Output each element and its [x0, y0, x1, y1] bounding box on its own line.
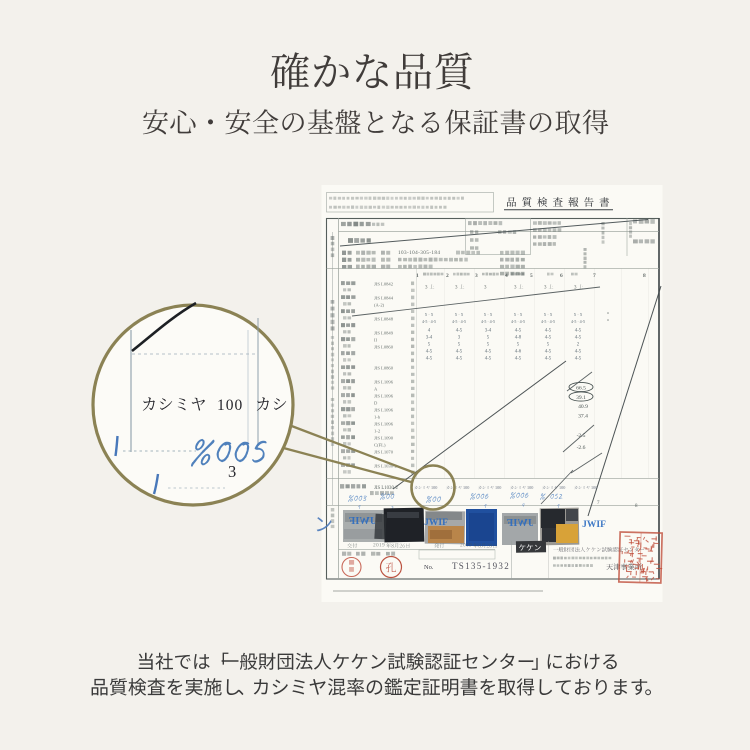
svg-text:4-5: 4-5 [545, 357, 552, 362]
svg-text:100: 100 [495, 485, 501, 490]
svg-text:4-5: 4-5 [575, 350, 582, 355]
svg-text:4-5 · 4-5: 4-5 · 4-5 [541, 319, 555, 324]
svg-text:1-b: 1-b [374, 414, 381, 419]
svg-text:JIS L1096: JIS L1096 [374, 421, 394, 426]
svg-text:3: 3 [475, 273, 478, 279]
svg-text:5 · 5: 5 · 5 [425, 312, 434, 317]
svg-text:4-5 · 4-5: 4-5 · 4-5 [571, 319, 585, 324]
svg-text:JIS L1096: JIS L1096 [374, 393, 394, 398]
svg-text:JIS L0844: JIS L0844 [374, 295, 394, 300]
svg-text:5 · 5: 5 · 5 [455, 312, 464, 317]
svg-text:II: II [374, 337, 378, 342]
svg-text:8: 8 [643, 273, 646, 279]
svg-text:5: 5 [530, 273, 533, 279]
svg-text:5 · 5: 5 · 5 [544, 312, 553, 317]
svg-text:2: 2 [446, 273, 449, 279]
svg-text:100: 100 [431, 485, 437, 490]
svg-text:JWIF: JWIF [582, 520, 606, 530]
svg-text:JWIF: JWIF [424, 518, 448, 528]
svg-text:JIS L1096: JIS L1096 [374, 379, 394, 384]
svg-text:4-8: 4-8 [515, 336, 522, 341]
svg-text:6: 6 [560, 273, 563, 279]
svg-text:4-5 · 4-5: 4-5 · 4-5 [422, 319, 436, 324]
svg-text:100: 100 [591, 485, 597, 490]
svg-text:JIS L0849: JIS L0849 [374, 330, 394, 335]
svg-text:4-5: 4-5 [456, 350, 463, 355]
svg-text:4-5 · 4-5: 4-5 · 4-5 [481, 319, 495, 324]
svg-text:4-5: 4-5 [545, 350, 552, 355]
svg-text:JWIF: JWIF [507, 518, 533, 529]
svg-text:4-5: 4-5 [426, 350, 433, 355]
svg-text:JIS L0860: JIS L0860 [374, 344, 394, 349]
svg-text:4-5: 4-5 [426, 357, 433, 362]
svg-text:2019: 2019 [373, 543, 385, 549]
svg-text:JIS L0860: JIS L0860 [374, 365, 394, 370]
svg-text:4-5: 4-5 [485, 350, 492, 355]
svg-text:(A-2): (A-2) [374, 302, 385, 307]
svg-text:4-5: 4-5 [456, 329, 463, 334]
svg-text:4-5: 4-5 [575, 336, 582, 341]
svg-text:JIS L0842: JIS L0842 [374, 281, 394, 286]
svg-text:3-4: 3-4 [485, 329, 492, 334]
svg-text:3: 3 [228, 462, 236, 481]
svg-text:4-5: 4-5 [485, 357, 492, 362]
svg-text:100: 100 [527, 485, 533, 490]
svg-text:2019: 2019 [460, 543, 472, 549]
svg-text:100: 100 [463, 485, 469, 490]
svg-text:4-5: 4-5 [575, 329, 582, 334]
svg-text:5 · 5: 5 · 5 [514, 312, 523, 317]
svg-text:JIS L1090: JIS L1090 [374, 435, 394, 440]
svg-text:TS135-1932: TS135-1932 [452, 561, 510, 571]
svg-text:5 · 5: 5 · 5 [484, 312, 493, 317]
svg-text:JWIF: JWIF [349, 516, 375, 527]
svg-text:4-5 · 4-5: 4-5 · 4-5 [452, 319, 466, 324]
svg-text:40.9: 40.9 [578, 404, 588, 410]
svg-text:JIS L1070: JIS L1070 [374, 449, 394, 454]
svg-text:C(FL): C(FL) [374, 442, 386, 447]
svg-text:100: 100 [559, 485, 565, 490]
svg-text:66.5: 66.5 [576, 386, 586, 392]
svg-text:-2.6: -2.6 [577, 445, 586, 451]
svg-text:4-5: 4-5 [515, 357, 522, 362]
svg-text:JIS L1030-2: JIS L1030-2 [374, 486, 398, 491]
svg-text:4-5 · 4-5: 4-5 · 4-5 [511, 319, 525, 324]
svg-text:JIS L1096: JIS L1096 [374, 407, 394, 412]
svg-text:4-6: 4-6 [515, 350, 522, 355]
svg-text:1-2: 1-2 [374, 428, 381, 433]
svg-text:37.4: 37.4 [578, 414, 588, 420]
svg-text:No.: No. [424, 564, 434, 571]
svg-text:39.1: 39.1 [576, 395, 586, 401]
svg-text:3-4: 3-4 [426, 336, 433, 341]
svg-text:4-5: 4-5 [545, 329, 552, 334]
svg-text:JIS L0848: JIS L0848 [374, 316, 394, 321]
svg-text:4: 4 [505, 273, 508, 279]
svg-text:100: 100 [217, 397, 243, 414]
svg-text:4-5: 4-5 [545, 336, 552, 341]
svg-text:4-5: 4-5 [575, 357, 582, 362]
svg-text:4-5: 4-5 [515, 329, 522, 334]
svg-text:4-5: 4-5 [456, 357, 463, 362]
svg-text:5 · 5: 5 · 5 [574, 312, 583, 317]
svg-text:103-104-305-184: 103-104-305-184 [398, 250, 440, 256]
